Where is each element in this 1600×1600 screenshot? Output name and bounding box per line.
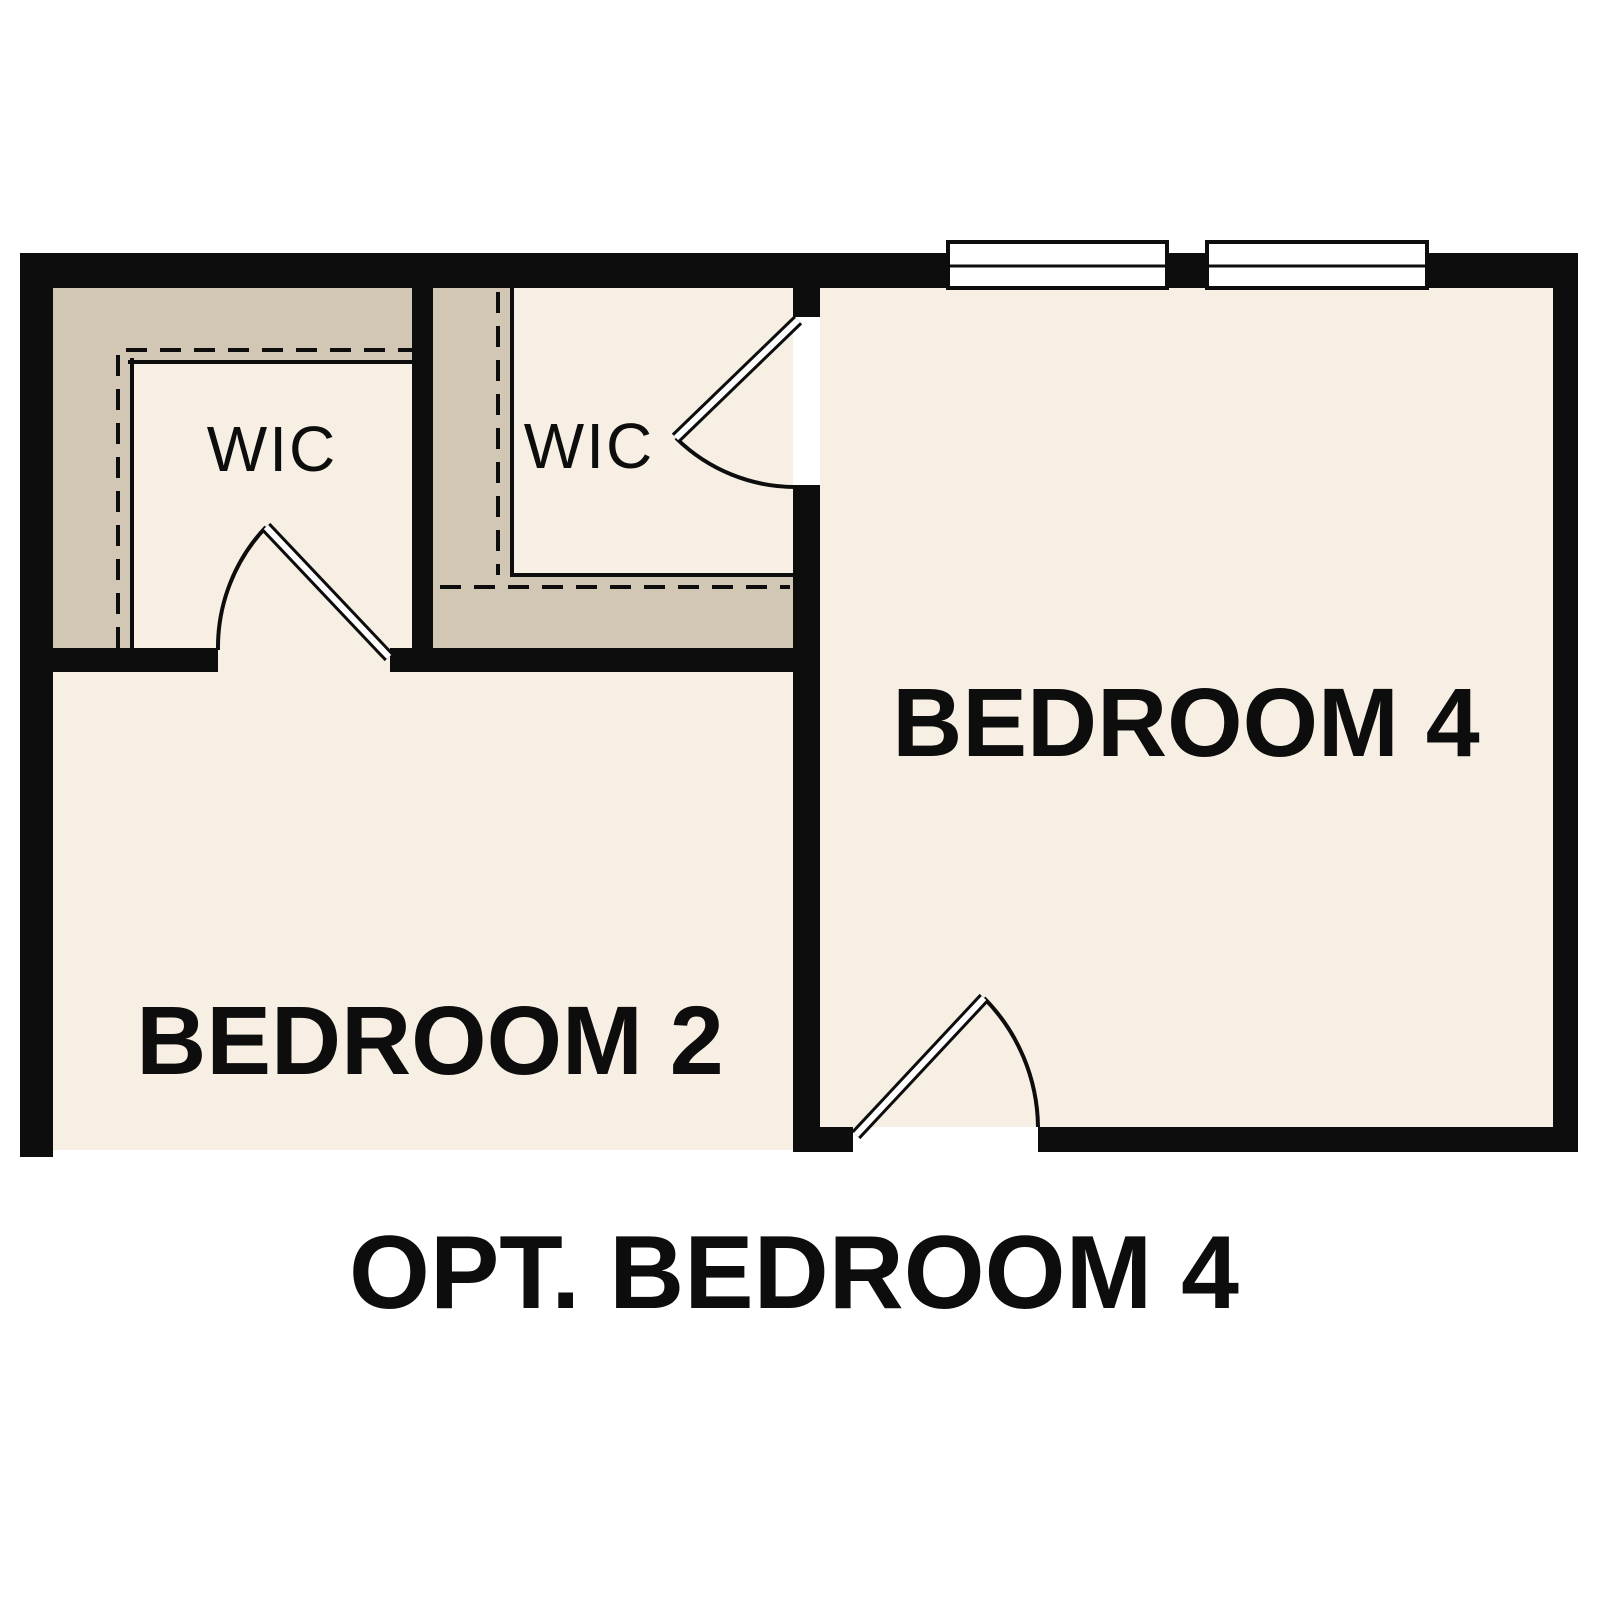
bedroom-divider-wall-upper-stub [793,288,820,317]
bedroom4-label: BEDROOM 4 [892,668,1480,777]
window-symbol-right [1207,242,1427,288]
right-exterior-wall [1553,253,1578,1152]
bedroom4-bottom-wall-left-stub [793,1127,853,1152]
plan-title: OPT. BEDROOM 4 [349,1215,1239,1331]
floor-plan-canvas: WIC WIC BEDROOM 2 BEDROOM 4 OPT. BEDROOM… [0,0,1600,1600]
left-exterior-wall [20,253,53,1157]
bedroom2-top-wall-left [20,648,218,672]
bedroom2-top-wall-right [390,648,820,672]
wic-right-label: WIC [524,410,654,482]
bedroom2-label: BEDROOM 2 [136,986,723,1095]
wic-divider-wall [412,288,433,672]
window-symbol-left [948,242,1167,288]
bedroom-divider-wall-lower [793,485,820,1152]
bedroom4-bottom-wall-right [1038,1127,1578,1152]
wic-left-label: WIC [207,413,337,485]
wic-left-inner-floor [130,360,412,648]
